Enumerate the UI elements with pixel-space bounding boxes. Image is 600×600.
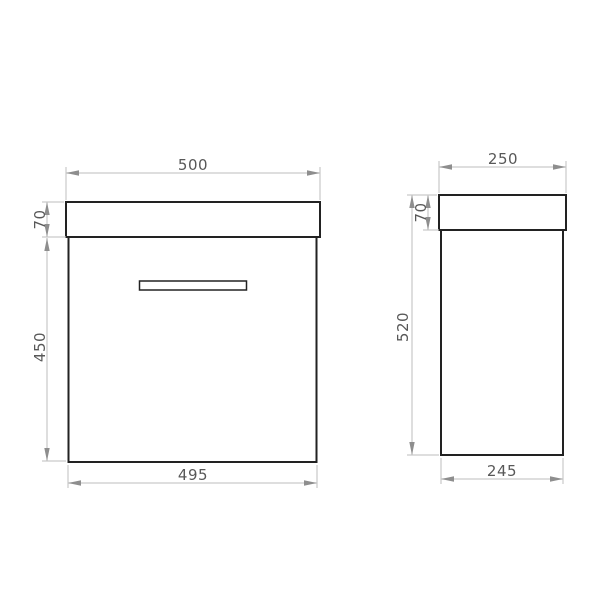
front-handle-outline <box>140 281 247 290</box>
front-dim-worktop-height: 70 <box>31 202 66 237</box>
front-cabinet-body-outline <box>69 237 317 462</box>
arrowhead-right-icon <box>553 164 566 169</box>
side-worktop-outline <box>439 195 566 230</box>
dim-label-side-worktop-height: 70 <box>412 202 430 222</box>
dim-label-side-cabinet-depth: 245 <box>487 462 517 480</box>
side-dim-cabinet-depth: 245 <box>441 458 563 484</box>
dim-label-side-overall-height: 520 <box>394 312 412 342</box>
dim-label-front-worktop-height: 70 <box>31 209 49 229</box>
front-dim-top-width: 500 <box>66 156 320 200</box>
side-dim-top-depth: 250 <box>439 150 566 193</box>
arrowhead-right-icon <box>550 476 563 481</box>
side-dim-worktop-height: 70 <box>412 195 439 230</box>
dim-label-side-top-depth: 250 <box>488 150 518 168</box>
dim-label-front-cabinet-width: 495 <box>178 466 208 484</box>
arrowhead-left-icon <box>441 476 454 481</box>
front-dim-cabinet-width: 495 <box>68 465 317 488</box>
arrowhead-up-icon <box>409 195 414 208</box>
arrowhead-left-icon <box>439 164 452 169</box>
front-worktop-outline <box>66 202 320 237</box>
dim-label-front-cabinet-height: 450 <box>31 332 49 362</box>
arrowhead-down-icon <box>409 442 414 455</box>
arrowhead-left-icon <box>68 480 81 485</box>
arrowhead-right-icon <box>307 170 320 175</box>
arrowhead-left-icon <box>66 170 79 175</box>
front-dim-cabinet-height: 450 <box>31 238 66 461</box>
arrowhead-down-icon <box>44 448 49 461</box>
cabinet-dimension-drawing: 500 70 450 <box>0 0 600 600</box>
side-view: 250 70 520 <box>394 150 566 484</box>
front-view: 500 70 450 <box>31 156 320 488</box>
side-cabinet-body-outline <box>441 230 563 455</box>
arrowhead-right-icon <box>304 480 317 485</box>
side-dim-overall-height: 520 <box>394 195 439 455</box>
dim-label-front-top-width: 500 <box>178 156 208 174</box>
technical-drawing-page: 500 70 450 <box>0 0 600 600</box>
arrowhead-up-icon <box>44 238 49 251</box>
